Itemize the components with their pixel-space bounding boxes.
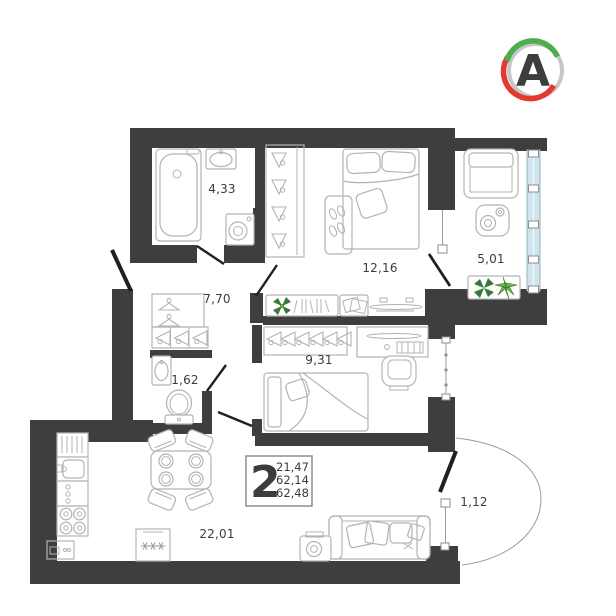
wall-right-mid <box>428 397 455 452</box>
wall-step <box>30 420 153 442</box>
drawer-unit-icon <box>136 529 170 561</box>
room-label-bathroom: 4,33 <box>208 182 236 196</box>
stove-icon <box>57 506 88 536</box>
room-label-kitchen-living: 22,01 <box>199 527 234 541</box>
room-label-hallway: 7,70 <box>203 292 231 306</box>
wall-hall-left <box>112 289 133 420</box>
tv-console-icon <box>370 298 422 311</box>
loggia-glazing <box>527 150 540 293</box>
room-label-wc: 1,62 <box>171 373 199 387</box>
bathroom-sink-icon <box>206 149 236 169</box>
kids-room-furniture <box>264 327 428 431</box>
planter-box-icon <box>468 276 520 299</box>
wall-bath-left <box>130 128 152 247</box>
toilet-icon <box>165 390 193 424</box>
bedroom-furniture <box>266 145 422 316</box>
bedroom-closet <box>266 145 304 257</box>
wall-kids-left-top <box>252 325 262 363</box>
hall-closet <box>152 294 204 327</box>
wc-fixtures <box>152 356 193 424</box>
room-label-kids-room: 9,31 <box>305 353 333 367</box>
logo-letter: A <box>516 46 550 97</box>
wall-wc-right <box>202 391 212 434</box>
speaker-icon <box>476 205 509 236</box>
side-speaker-icon <box>300 532 331 561</box>
info-box: 2 21,47 62,14 62,48 <box>246 456 312 508</box>
loggia-furniture <box>464 149 520 299</box>
wc-sink-icon <box>152 356 171 385</box>
hallway-furniture <box>152 294 208 348</box>
wc-door <box>207 365 226 391</box>
kids-wardrobe <box>264 327 351 355</box>
wall-bottom-right-corner <box>426 546 458 584</box>
sofa-icon <box>329 516 430 559</box>
bedroom-loggia-window <box>438 210 447 253</box>
dining-table-icon <box>147 429 214 512</box>
floorplan-drawing: 4,33 12,16 5,01 7,70 1,62 9,31 22,01 1,1… <box>0 0 616 616</box>
sink-drainer-icon <box>57 433 88 481</box>
room-label-bedroom: 12,16 <box>362 261 397 275</box>
wall-bedroomdoor-block <box>250 293 263 323</box>
kitchen-furniture <box>47 429 430 561</box>
bedroom-door <box>256 265 277 296</box>
single-bed-icon <box>264 373 368 431</box>
kids-room-window <box>442 337 450 400</box>
wall-kids-bottom <box>255 433 455 446</box>
room-label-loggia: 5,01 <box>477 252 505 266</box>
bathtub-icon <box>156 149 201 241</box>
double-bed-icon <box>343 149 419 249</box>
kids-room-door <box>218 412 252 426</box>
room-labels: 4,33 12,16 5,01 7,70 1,62 9,31 22,01 1,1… <box>171 182 505 541</box>
bathroom-door <box>197 246 224 264</box>
room-label-entry-balcony: 1,12 <box>460 495 488 509</box>
wall-bedroom-right <box>428 148 455 210</box>
wall-bath-bottom-l <box>130 245 197 263</box>
wall-bath-bedroom <box>255 143 265 260</box>
kitchen-cabinet-icon <box>57 481 88 506</box>
armchair-icon <box>464 149 518 198</box>
washing-machine-icon <box>226 214 254 245</box>
area-value: 62,14 <box>276 473 309 487</box>
bedroom-loggia-door <box>429 254 450 286</box>
living-balcony-door <box>440 451 456 492</box>
wall-bedroom-bottom <box>263 316 455 325</box>
desk-icon <box>357 327 428 357</box>
hall-hanger-row <box>152 327 208 348</box>
bathroom-fixtures <box>156 149 254 245</box>
total-area-value: 62,48 <box>276 486 309 500</box>
bedroom-sideboard <box>266 295 422 316</box>
wall-bottom-main <box>30 561 460 584</box>
living-french-window <box>441 499 450 550</box>
floorplan-page: 4,33 12,16 5,01 7,70 1,62 9,31 22,01 1,1… <box>0 0 616 616</box>
living-area-value: 21,47 <box>276 460 309 474</box>
company-logo: A <box>503 41 562 99</box>
desk-chair-icon <box>382 356 416 390</box>
entrance-door <box>112 250 131 291</box>
